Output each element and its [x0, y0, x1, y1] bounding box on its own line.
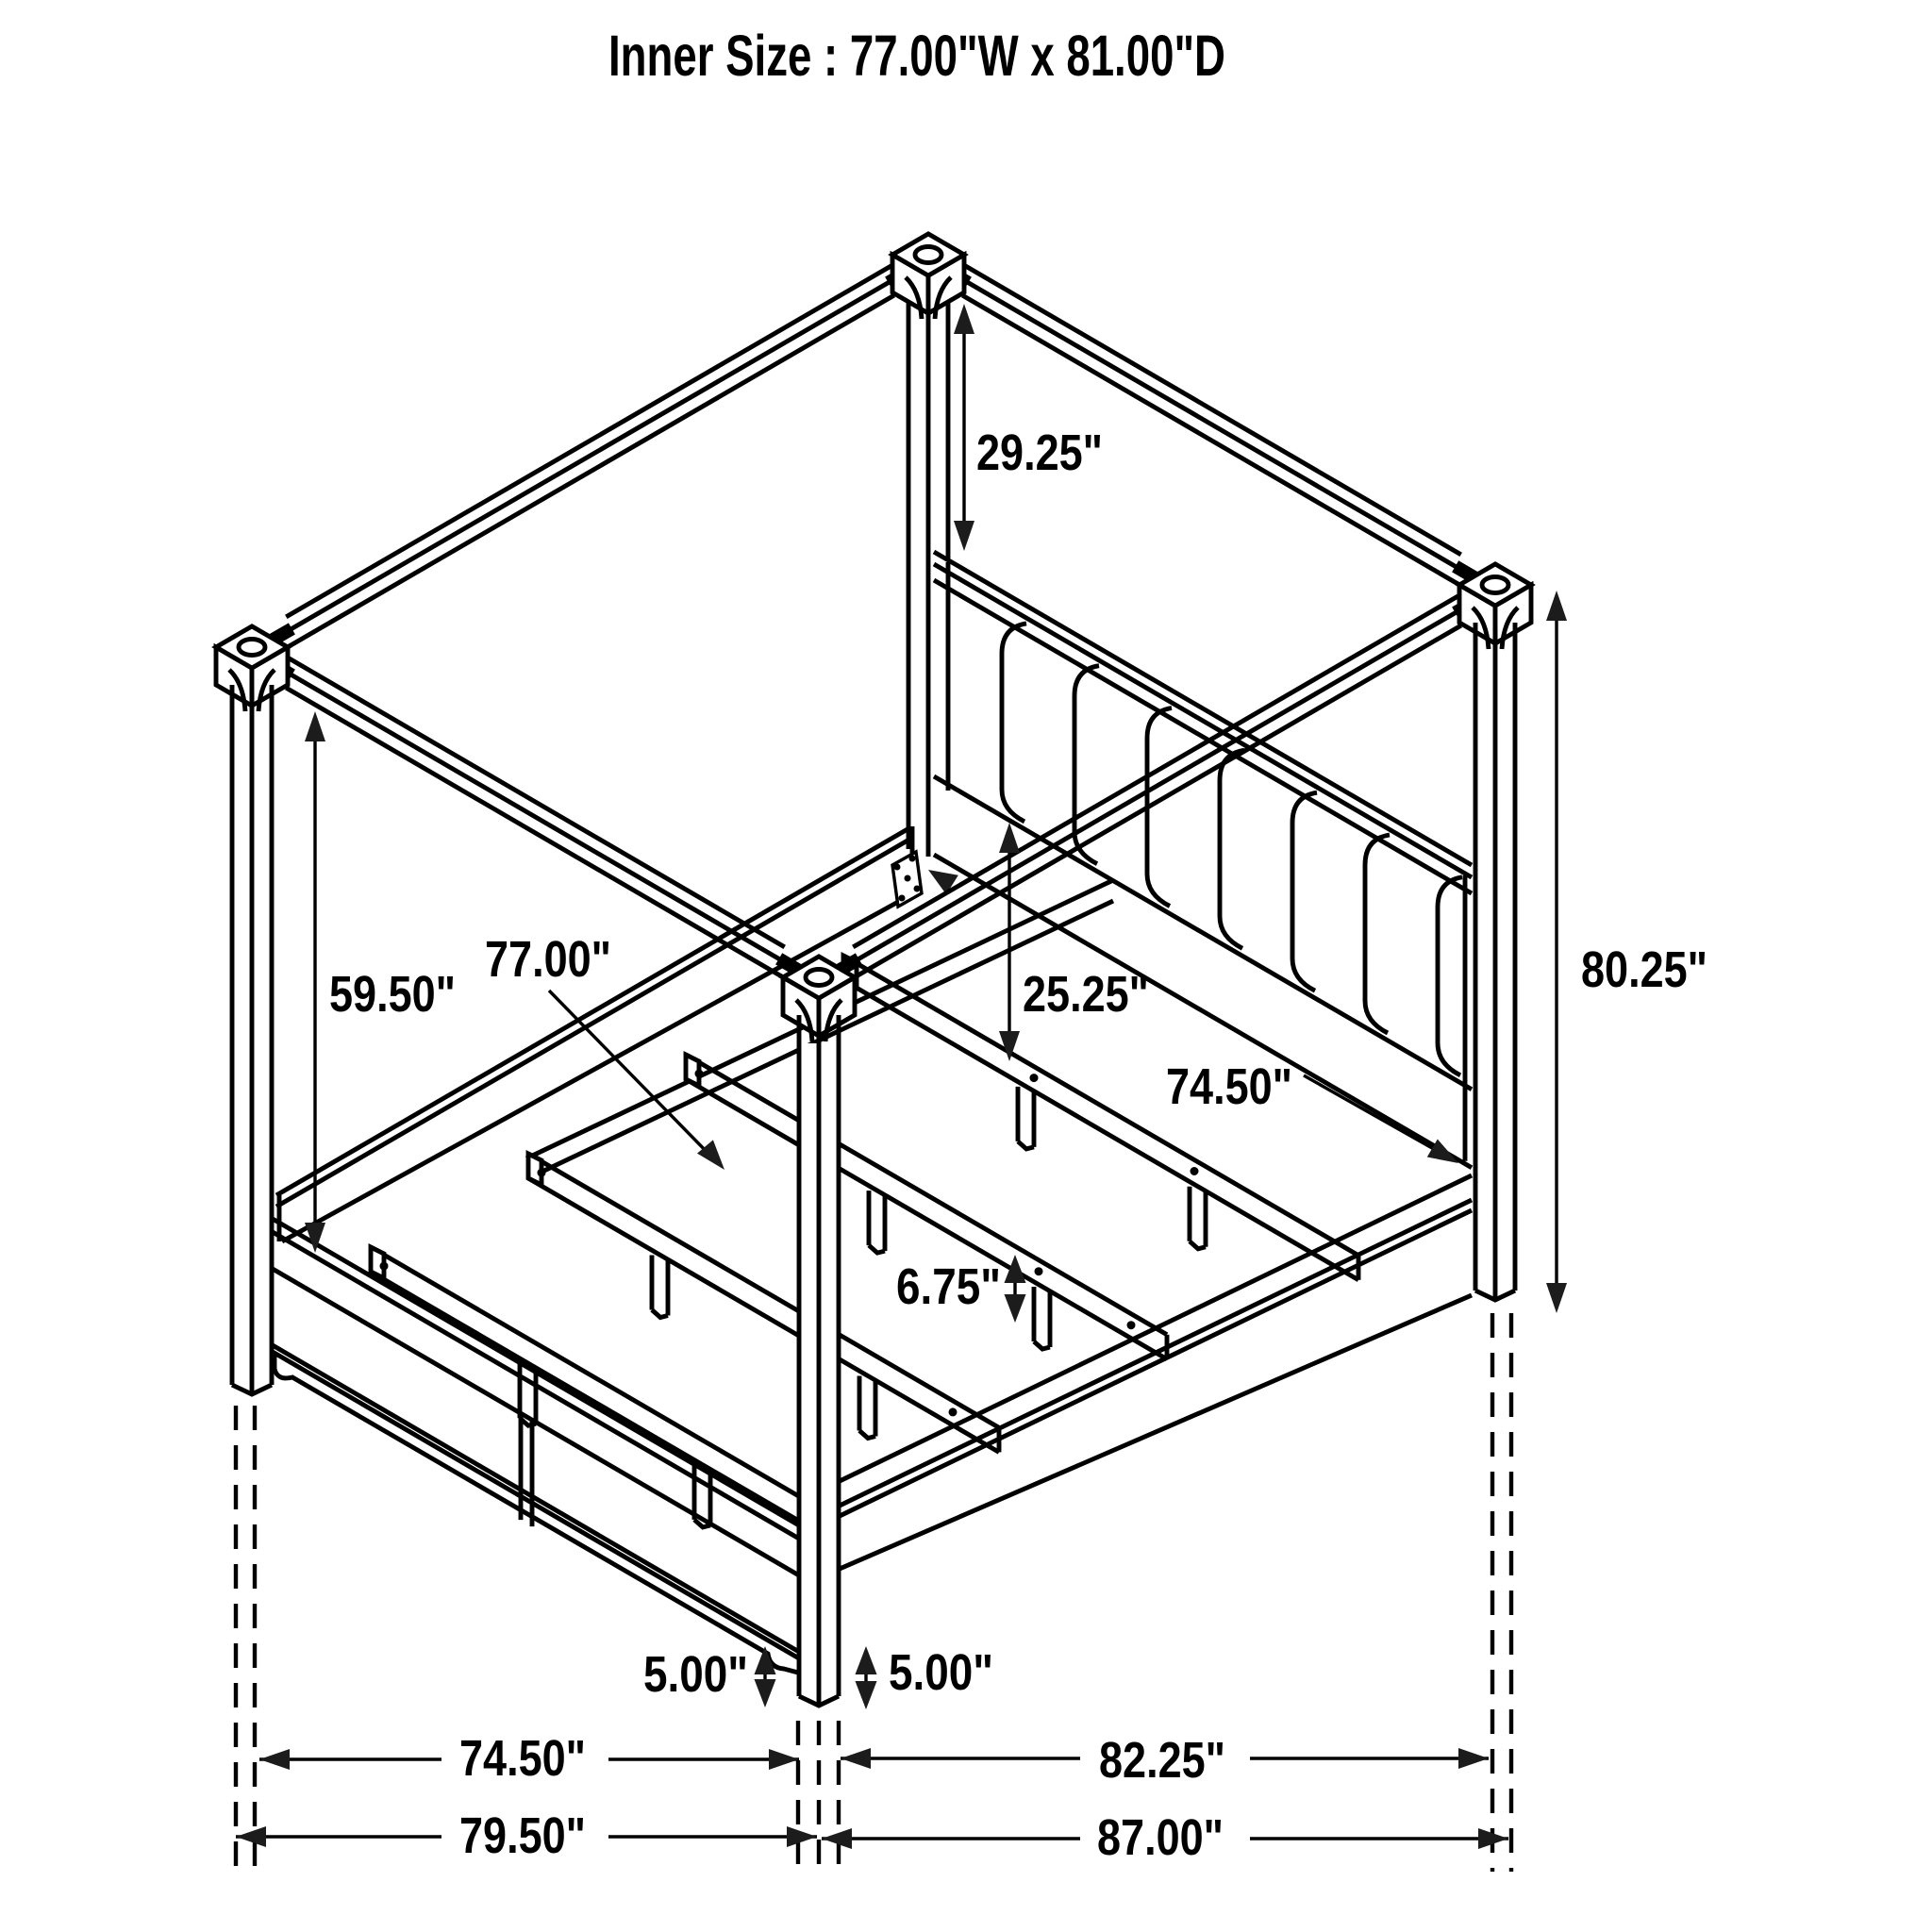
svg-text:6.75": 6.75" — [896, 1258, 1001, 1315]
svg-text:59.50": 59.50" — [329, 966, 456, 1023]
svg-text:74.50": 74.50" — [459, 1730, 586, 1787]
svg-text:82.25": 82.25" — [1099, 1732, 1225, 1789]
svg-text:25.25": 25.25" — [1023, 966, 1149, 1023]
svg-text:5.00": 5.00" — [889, 1644, 993, 1701]
svg-text:80.25": 80.25" — [1581, 941, 1707, 998]
svg-text:Inner Size : 77.00"W x 81.00"D: Inner Size : 77.00"W x 81.00"D — [608, 24, 1225, 88]
svg-text:29.25": 29.25" — [976, 425, 1103, 481]
svg-text:74.50": 74.50" — [1166, 1058, 1292, 1115]
svg-text:79.50": 79.50" — [459, 1807, 586, 1864]
svg-text:87.00": 87.00" — [1097, 1809, 1224, 1866]
svg-text:5.00": 5.00" — [643, 1646, 748, 1703]
svg-text:77.00": 77.00" — [485, 931, 611, 988]
